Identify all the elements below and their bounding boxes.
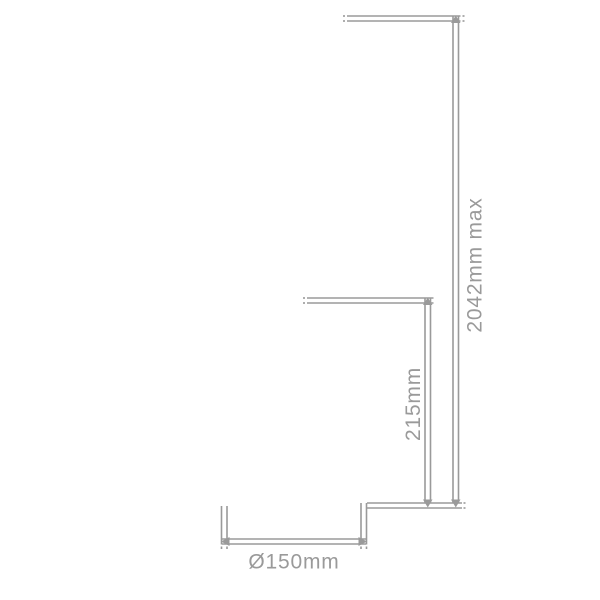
max-drop-label: 2042mm max (464, 197, 487, 332)
height-label: 215mm (402, 367, 425, 441)
diameter-dimension-line (221, 537, 367, 546)
shade-top-reference-line (303, 298, 434, 303)
shade-bottom-reference-line (367, 503, 466, 508)
max-drop-dimension-line (451, 16, 461, 508)
diameter-label: Ø150mm (248, 551, 339, 574)
dimension-drawing-canvas: 2042mm max 215mm Ø150mm (0, 0, 600, 600)
dimension-diagram: 2042mm max 215mm Ø150mm (0, 0, 600, 600)
top-reference-line (343, 16, 465, 21)
